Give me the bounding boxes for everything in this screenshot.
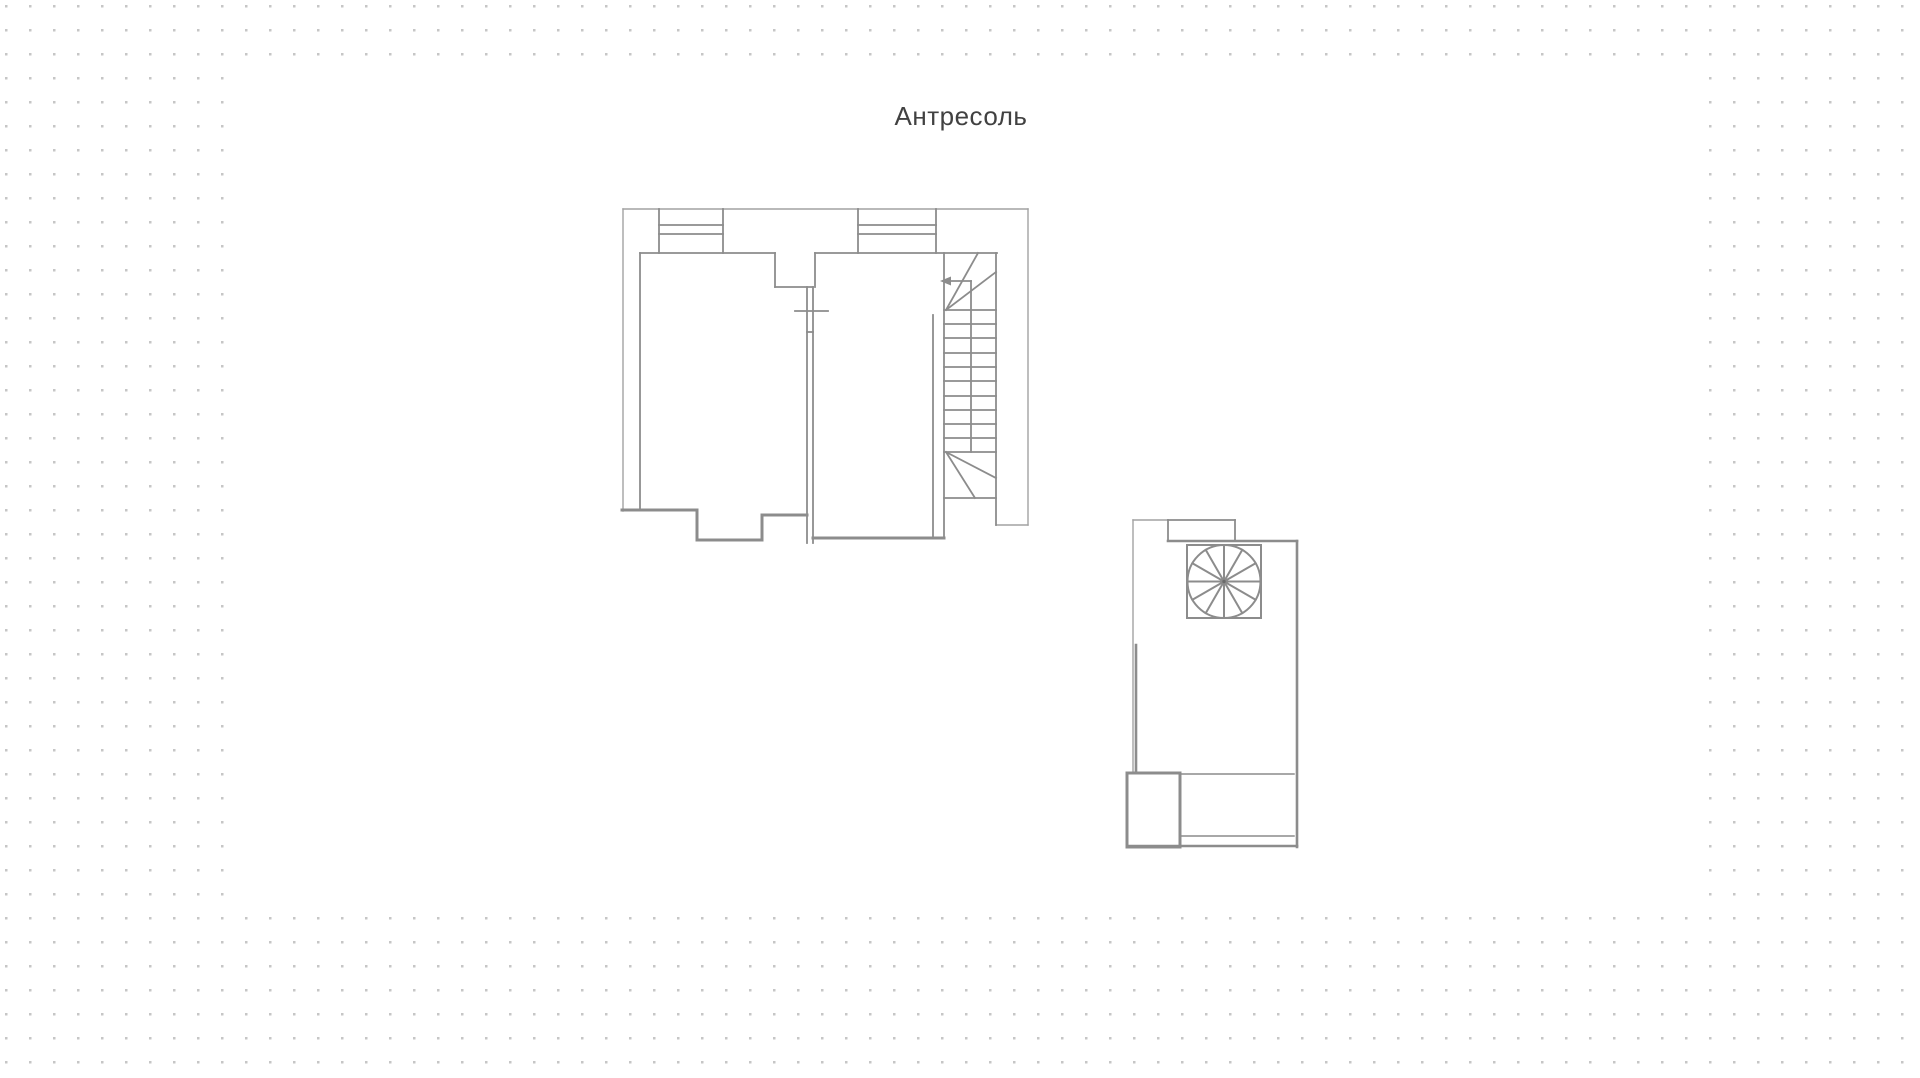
canvas-stage: Антресоль <box>0 0 1920 1078</box>
plan-title: Антресоль <box>791 101 1131 132</box>
canvas-white-area <box>232 66 1692 916</box>
floor-plan-svg <box>0 0 1920 1078</box>
spiral-stair-center-dot <box>1222 580 1225 583</box>
spiral-staircase <box>1188 545 1261 618</box>
